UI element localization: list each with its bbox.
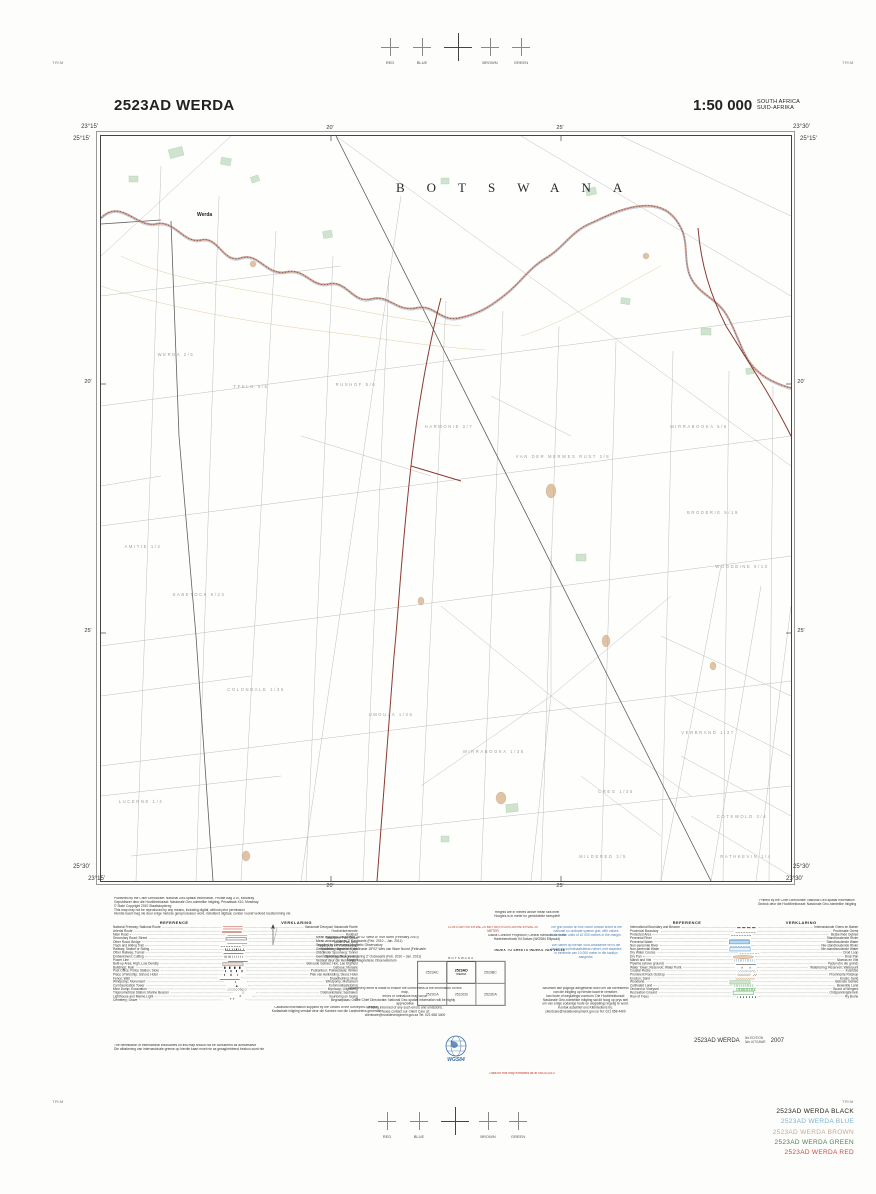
dotted-leader <box>759 974 828 975</box>
country-name-label: BOTSWANA <box>396 180 644 195</box>
farm-name-label: AMITIE 1/2 <box>125 544 162 549</box>
registration-cross-black <box>444 33 472 61</box>
edition-numbers: 3rd EDITION 3de UITGAWE <box>745 1037 766 1044</box>
legend-text-en: Cemetery; Grave <box>113 999 137 1002</box>
registration-cross-brown <box>481 38 499 56</box>
note-line: Kadastrale inligting verskaf deur die Ka… <box>216 1010 436 1014</box>
dotted-leader <box>653 960 733 961</box>
fence-symbol-icon <box>220 979 240 980</box>
farm-name-label: RUSHOF 5/6 <box>336 382 377 387</box>
dotted-leader <box>752 942 825 943</box>
farm-name-label: HARMONIE 2/7 <box>425 424 474 429</box>
intl-symbol-icon <box>737 927 757 928</box>
dotted-leader <box>756 985 835 986</box>
road-sec-symbol-icon <box>226 937 247 940</box>
farm-name-label: MIRRABOOKA 5/6 <box>670 424 728 429</box>
dotted-leader <box>147 981 224 982</box>
rail-symbol-icon <box>225 948 245 950</box>
dotted-leader <box>134 931 220 932</box>
farm-name-label: CREG 1/35 <box>598 789 634 794</box>
registration-label: RED <box>381 60 399 65</box>
dotted-leader <box>256 992 319 993</box>
farm-name-label: WERDA 2/5 <box>158 352 195 357</box>
trim-mark-bottom-left: TRIM <box>52 1099 64 1104</box>
index-sheet-cell: 2523BC <box>476 961 505 983</box>
dotted-leader <box>131 978 218 979</box>
dotted-leader <box>667 974 736 975</box>
cross-icon <box>381 38 399 56</box>
road-other-symbol-icon <box>227 943 247 944</box>
minedump-symbol-icon <box>227 988 247 991</box>
note-line: Verskaf deur die Hermanus Magnetiese Obs… <box>316 959 432 963</box>
track-symbol-icon <box>221 946 241 947</box>
dotted-leader <box>162 927 221 928</box>
dotted-leader <box>660 989 734 990</box>
dotted-leader <box>661 949 728 950</box>
dotted-leader <box>246 949 318 950</box>
dotted-leader <box>149 938 224 939</box>
town-label: Werda <box>197 212 212 218</box>
pipeline-symbol-icon <box>736 965 756 966</box>
index-heading: INDEX TO SHEETS INDEKS VAN VELLE <box>448 949 613 953</box>
note-line: clientcare@ruraldevelopment.gov.za Tel: … <box>537 1010 633 1014</box>
coord-top-right-lon: 23°30' <box>793 124 810 130</box>
registration-cross-green <box>509 1112 527 1130</box>
registration-label: GREEN <box>512 60 530 65</box>
cross-icon <box>479 1112 497 1130</box>
farm-name-label: RATHKEVIN 1/4 <box>720 854 771 859</box>
dotted-leader <box>755 992 828 993</box>
scale-label: 1:50 000 <box>693 97 752 114</box>
farm-name-label: COTSWOLD 3/4 <box>717 814 767 819</box>
cross-icon <box>509 1112 527 1130</box>
dotted-leader <box>142 942 226 943</box>
legend-row: National Freeway; National RouteNasional… <box>113 926 358 930</box>
offices-symbol-icon <box>225 970 245 972</box>
dotted-leader <box>159 974 222 975</box>
tick-left-20: 20' <box>80 379 96 385</box>
coord-top-left-lat: 25°15' <box>60 136 90 142</box>
edition-af: 3de UITGAWE <box>745 1041 766 1045</box>
map-sheet: TRIM TRIM TRIM TRIM RED BLUE BROWN GREEN… <box>0 0 876 1194</box>
dotted-leader <box>131 960 227 961</box>
cross-icon <box>481 38 499 56</box>
tick-top-25: 25' <box>552 125 568 131</box>
trim-mark-top-right: TRIM <box>842 60 854 65</box>
worship-symbol-icon <box>224 974 244 976</box>
tick-bottom-25: 25' <box>552 883 568 889</box>
farm-name-label: WOODBINE 6/10 <box>715 564 768 569</box>
legend-heading-af: VERKLARING <box>235 921 357 925</box>
north-arrow-icon <box>266 924 280 951</box>
legend-heading-en: REFERENCE <box>113 921 235 925</box>
dotted-leader <box>249 934 344 935</box>
dotted-leader <box>245 974 308 975</box>
legend-row: Row of TreesRy Bome <box>630 995 858 999</box>
dotted-leader <box>752 949 819 950</box>
rockout-symbol-icon <box>737 974 757 976</box>
cross-icon <box>413 38 431 56</box>
registration-label: GREEN <box>509 1134 527 1139</box>
index-top-label: BOTSWANA <box>417 957 506 960</box>
farm-name-label: UMGUZA 1/35 <box>369 712 414 717</box>
farm-name-label: LUCERNE 1/4 <box>119 799 164 804</box>
buildings-symbol-icon <box>224 967 244 969</box>
dotted-leader <box>757 931 831 932</box>
dotted-leader <box>146 985 226 986</box>
dotted-leader <box>136 967 222 968</box>
dotted-leader <box>646 981 728 982</box>
dotted-leader <box>145 956 222 957</box>
dotted-leader <box>146 952 222 953</box>
edge-ticks <box>101 136 791 881</box>
registration-cross-blue <box>413 38 431 56</box>
dotted-leader <box>248 938 323 939</box>
coord-bottom-left-lon: 23°15' <box>75 876 105 882</box>
dotted-leader <box>246 956 323 957</box>
legend-heading-af: VERKLARING <box>744 921 858 925</box>
index-sheet-cell: 2523DA <box>476 983 505 1005</box>
legend-right: REFERENCE VERKLARING International Bound… <box>630 921 858 998</box>
dotted-leader <box>249 989 326 990</box>
dotted-leader <box>652 971 736 972</box>
dotted-leader <box>161 971 224 972</box>
errors-note-af: Alhoewel alle pogings aangewend word om … <box>537 987 633 1014</box>
contour-interval-note: CONTOUR INTERVAL 20 METRES KONTOERINTERV… <box>446 926 540 934</box>
dotted-leader <box>241 978 328 979</box>
note-line: While every effort is made to ensure the… <box>347 987 463 995</box>
coord-bottom-right-lat: 25°30' <box>793 864 810 870</box>
legend-left-heading: REFERENCE VERKLARING <box>113 921 358 925</box>
map-labels: BOTSWANAWerdaWERDA 2/5TFELO 3/5RUSHOF 5/… <box>119 180 772 859</box>
secondary-roads <box>101 136 711 881</box>
dotted-leader <box>246 1000 330 1001</box>
rowtrees-symbol-icon <box>737 996 757 998</box>
tick-left-25: 25' <box>80 628 96 634</box>
farm-name-label: COLONDALE 1/35 <box>227 687 285 692</box>
legend-right-heading: REFERENCE VERKLARING <box>630 921 858 925</box>
dotted-leader <box>757 967 808 968</box>
legend-heading-en: REFERENCE <box>630 921 744 925</box>
printer-note: Printed by the Chief Directorate: Nation… <box>708 899 876 907</box>
registration-cross-red <box>381 38 399 56</box>
dotted-leader <box>757 978 839 979</box>
dotted-leader <box>653 934 730 935</box>
index-sheet-cell: 2523AC <box>418 961 447 983</box>
colour-plate-label: 2523AD WERDA BLUE <box>773 1117 854 1127</box>
note-line: clientcare@ruraldevelopment.gov.za Tel: … <box>347 1014 463 1018</box>
dotted-leader <box>155 996 230 997</box>
dotted-leader <box>245 967 331 968</box>
dotted-leader <box>755 956 843 957</box>
dotted-leader <box>752 981 834 982</box>
dotted-leader <box>761 952 842 953</box>
note-line: Hartebeesthoek 94 Datum (WGS84 Ellipsoid… <box>439 938 615 942</box>
farm-name-label: MIRRABOOKA 1/35 <box>463 749 524 754</box>
road-main-symbol-icon <box>227 936 247 937</box>
note-line: Hoogtes is in meter bo gemiddelde seespi… <box>439 915 615 919</box>
registration-cross-brown <box>479 1112 497 1130</box>
delimitation-note: The delimitation of international bounda… <box>114 1044 345 1052</box>
farm-name-label: SABETOCK 5/23 <box>173 592 226 597</box>
tick-right-20: 20' <box>793 379 809 385</box>
grid-note-en: The grid shown on this South African she… <box>548 926 625 938</box>
builtup-symbol-icon <box>222 962 243 966</box>
water-np-symbol-icon <box>730 948 751 952</box>
farm-name-label: VAN DER MERWES RUST 2/8 <box>516 454 611 459</box>
note-line: Hierdie kaart mag nie deur enige metode … <box>114 912 367 916</box>
tick-right-25: 25' <box>793 628 809 634</box>
international-boundary-river <box>101 206 791 390</box>
cross-icon <box>378 1112 396 1130</box>
edition-sheet: 2523AD WERDA <box>694 1038 740 1044</box>
farm-name-label: VERBRAND 1/37 <box>681 730 734 735</box>
embank-symbol-icon <box>224 956 244 958</box>
cadastral-note: Cadastral information supplied by the Of… <box>216 1006 436 1014</box>
dotted-leader <box>682 927 736 928</box>
legend-text-af: Ry Bome <box>845 995 858 998</box>
dotted-leader <box>751 945 819 946</box>
registration-cross-green <box>512 38 530 56</box>
dotted-leader <box>666 963 735 964</box>
dotted-leader <box>653 938 727 939</box>
note-line: Die afbakening van internasionale grense… <box>114 1048 345 1052</box>
dotted-leader <box>248 985 328 986</box>
watertower-symbol-icon <box>736 967 756 969</box>
registration-label: RED <box>378 1134 396 1139</box>
edition-year: 2007 <box>771 1038 784 1044</box>
coord-bottom-left-lat: 25°30' <box>60 864 90 870</box>
commtower-symbol-icon <box>236 985 238 987</box>
country-label: SOUTH AFRICA SUID-AFRIKA <box>757 99 800 111</box>
dotted-leader <box>751 938 825 939</box>
cemetery-symbol-icon <box>224 999 244 1002</box>
contour-lines <box>101 256 661 350</box>
registration-label: BROWN <box>479 1134 497 1139</box>
cross-icon <box>441 1107 469 1135</box>
dotted-leader <box>244 931 330 932</box>
dotted-leader <box>245 952 321 953</box>
dotted-leader <box>683 967 734 968</box>
road-art-symbol-icon <box>222 932 242 933</box>
rail2-symbol-icon <box>224 954 244 955</box>
farm-name-label: BRODERIE 5/19 <box>687 510 739 515</box>
dotted-leader <box>247 981 324 982</box>
water-p-symbol-icon <box>729 940 750 944</box>
registration-label: BLUE <box>410 1134 428 1139</box>
dotted-leader <box>650 996 735 997</box>
coord-top-right-lat: 25°15' <box>800 136 817 142</box>
dotted-leader <box>660 931 734 932</box>
trim-mark-bottom-right: TRIM <box>842 1099 854 1104</box>
dotted-leader <box>657 952 738 953</box>
farm-name-label: MILDERED 3/5 <box>579 854 627 859</box>
registration-label: BLUE <box>413 60 431 65</box>
farm-boundary-lines <box>101 136 791 881</box>
dotted-leader <box>760 971 844 972</box>
colour-plate-list: 2523AD WERDA BLACK2523AD WERDA BLUE2523A… <box>773 1107 854 1158</box>
marsh-symbol-icon <box>734 959 754 962</box>
dotted-leader <box>758 989 832 990</box>
farm-name-label: TFELO 3/5 <box>234 384 269 389</box>
dotted-leader <box>643 956 731 957</box>
trim-mark-top-left: TRIM <box>52 60 64 65</box>
dotted-leader <box>171 992 234 993</box>
wgs84-label: WGS84 <box>441 1057 471 1063</box>
cross-icon <box>444 33 472 61</box>
sheet-title: 2523AD WERDA <box>114 97 235 114</box>
note-line: Gedruk deur die Hoofdirektoraat: Nasiona… <box>708 903 876 907</box>
coord-top-left-lon: 23°15' <box>68 124 98 130</box>
dotted-leader <box>654 985 733 986</box>
coastal-symbol-icon <box>738 970 758 972</box>
road-dual-symbol-icon <box>223 926 243 929</box>
tick-bottom-20: 20' <box>322 883 338 889</box>
colour-plate-label: 2523AD WERDA BROWN <box>773 1128 854 1138</box>
dotted-leader <box>654 942 727 943</box>
dotted-leader <box>160 963 220 964</box>
dotted-leader <box>660 945 728 946</box>
note-line: indicated in units of 10 000 metres in t… <box>548 934 625 938</box>
protected-symbol-icon <box>731 936 751 937</box>
pan-patches <box>242 253 716 861</box>
dotted-leader <box>753 934 830 935</box>
coord-bottom-right-lon: 23°30' <box>786 876 803 882</box>
dotted-leader <box>145 945 219 946</box>
dotted-leader <box>139 1000 223 1001</box>
registration-label: BROWN <box>481 60 499 65</box>
legend-text-en: Row of Trees <box>630 995 649 998</box>
dotted-leader <box>151 949 223 950</box>
dotted-leader <box>253 996 328 997</box>
dotted-leader <box>148 989 225 990</box>
country-af: SUID-AFRIKA <box>757 105 800 111</box>
legend-row: Cemetery; GraveBegraafplaas; Graf <box>113 998 358 1002</box>
recreation-symbol-icon <box>733 991 754 995</box>
map-frame: BOTSWANAWerdaWERDA 2/5TFELO 3/5RUSHOF 5/… <box>100 135 792 882</box>
magnetic-declination-note: Mean magnetic declination 18°02' West of… <box>316 936 432 963</box>
extraction-date-note: Data for this map extracted as at 08/02/… <box>440 1072 605 1076</box>
dotted-leader <box>652 978 734 979</box>
colour-plate-label: 2523AD WERDA BLACK <box>773 1107 854 1117</box>
dotted-leader <box>756 960 836 961</box>
dotted-leader <box>757 963 826 964</box>
heights-note: Heights are in metres above mean sea lev… <box>439 911 615 919</box>
cross-icon <box>410 1112 428 1130</box>
note-line: Gemiddelde magnetiese deklinasie 18°02' … <box>316 948 432 956</box>
dotted-leader <box>245 963 305 964</box>
dotted-leader <box>247 971 310 972</box>
registration-cross-blue <box>410 1112 428 1130</box>
map-canvas: BOTSWANAWerdaWERDA 2/5TFELO 3/5RUSHOF 5/… <box>101 136 791 881</box>
edition-line: 2523AD WERDA 3rd EDITION 3de UITGAWE 200… <box>694 1037 784 1044</box>
dotted-leader <box>130 934 225 935</box>
dotted-leader <box>759 996 844 997</box>
colour-plate-label: 2523AD WERDA GREEN <box>773 1138 854 1148</box>
tick-top-20: 20' <box>322 125 338 131</box>
dotted-leader <box>759 927 813 928</box>
cultivated-symbol-icon <box>735 984 755 987</box>
colour-plate-label: 2523AD WERDA RED <box>773 1148 854 1158</box>
cross-icon <box>512 38 530 56</box>
publisher-note: Published by the Chief Directorate: Nati… <box>114 897 367 916</box>
registration-cross-red <box>378 1112 396 1130</box>
registration-cross-black <box>441 1107 469 1135</box>
index-sheet-cell: 2523ADWERDA <box>447 961 476 983</box>
dotted-leader <box>659 992 732 993</box>
windpump-symbol-icon <box>225 981 245 983</box>
prov-symbol-icon <box>736 932 756 933</box>
